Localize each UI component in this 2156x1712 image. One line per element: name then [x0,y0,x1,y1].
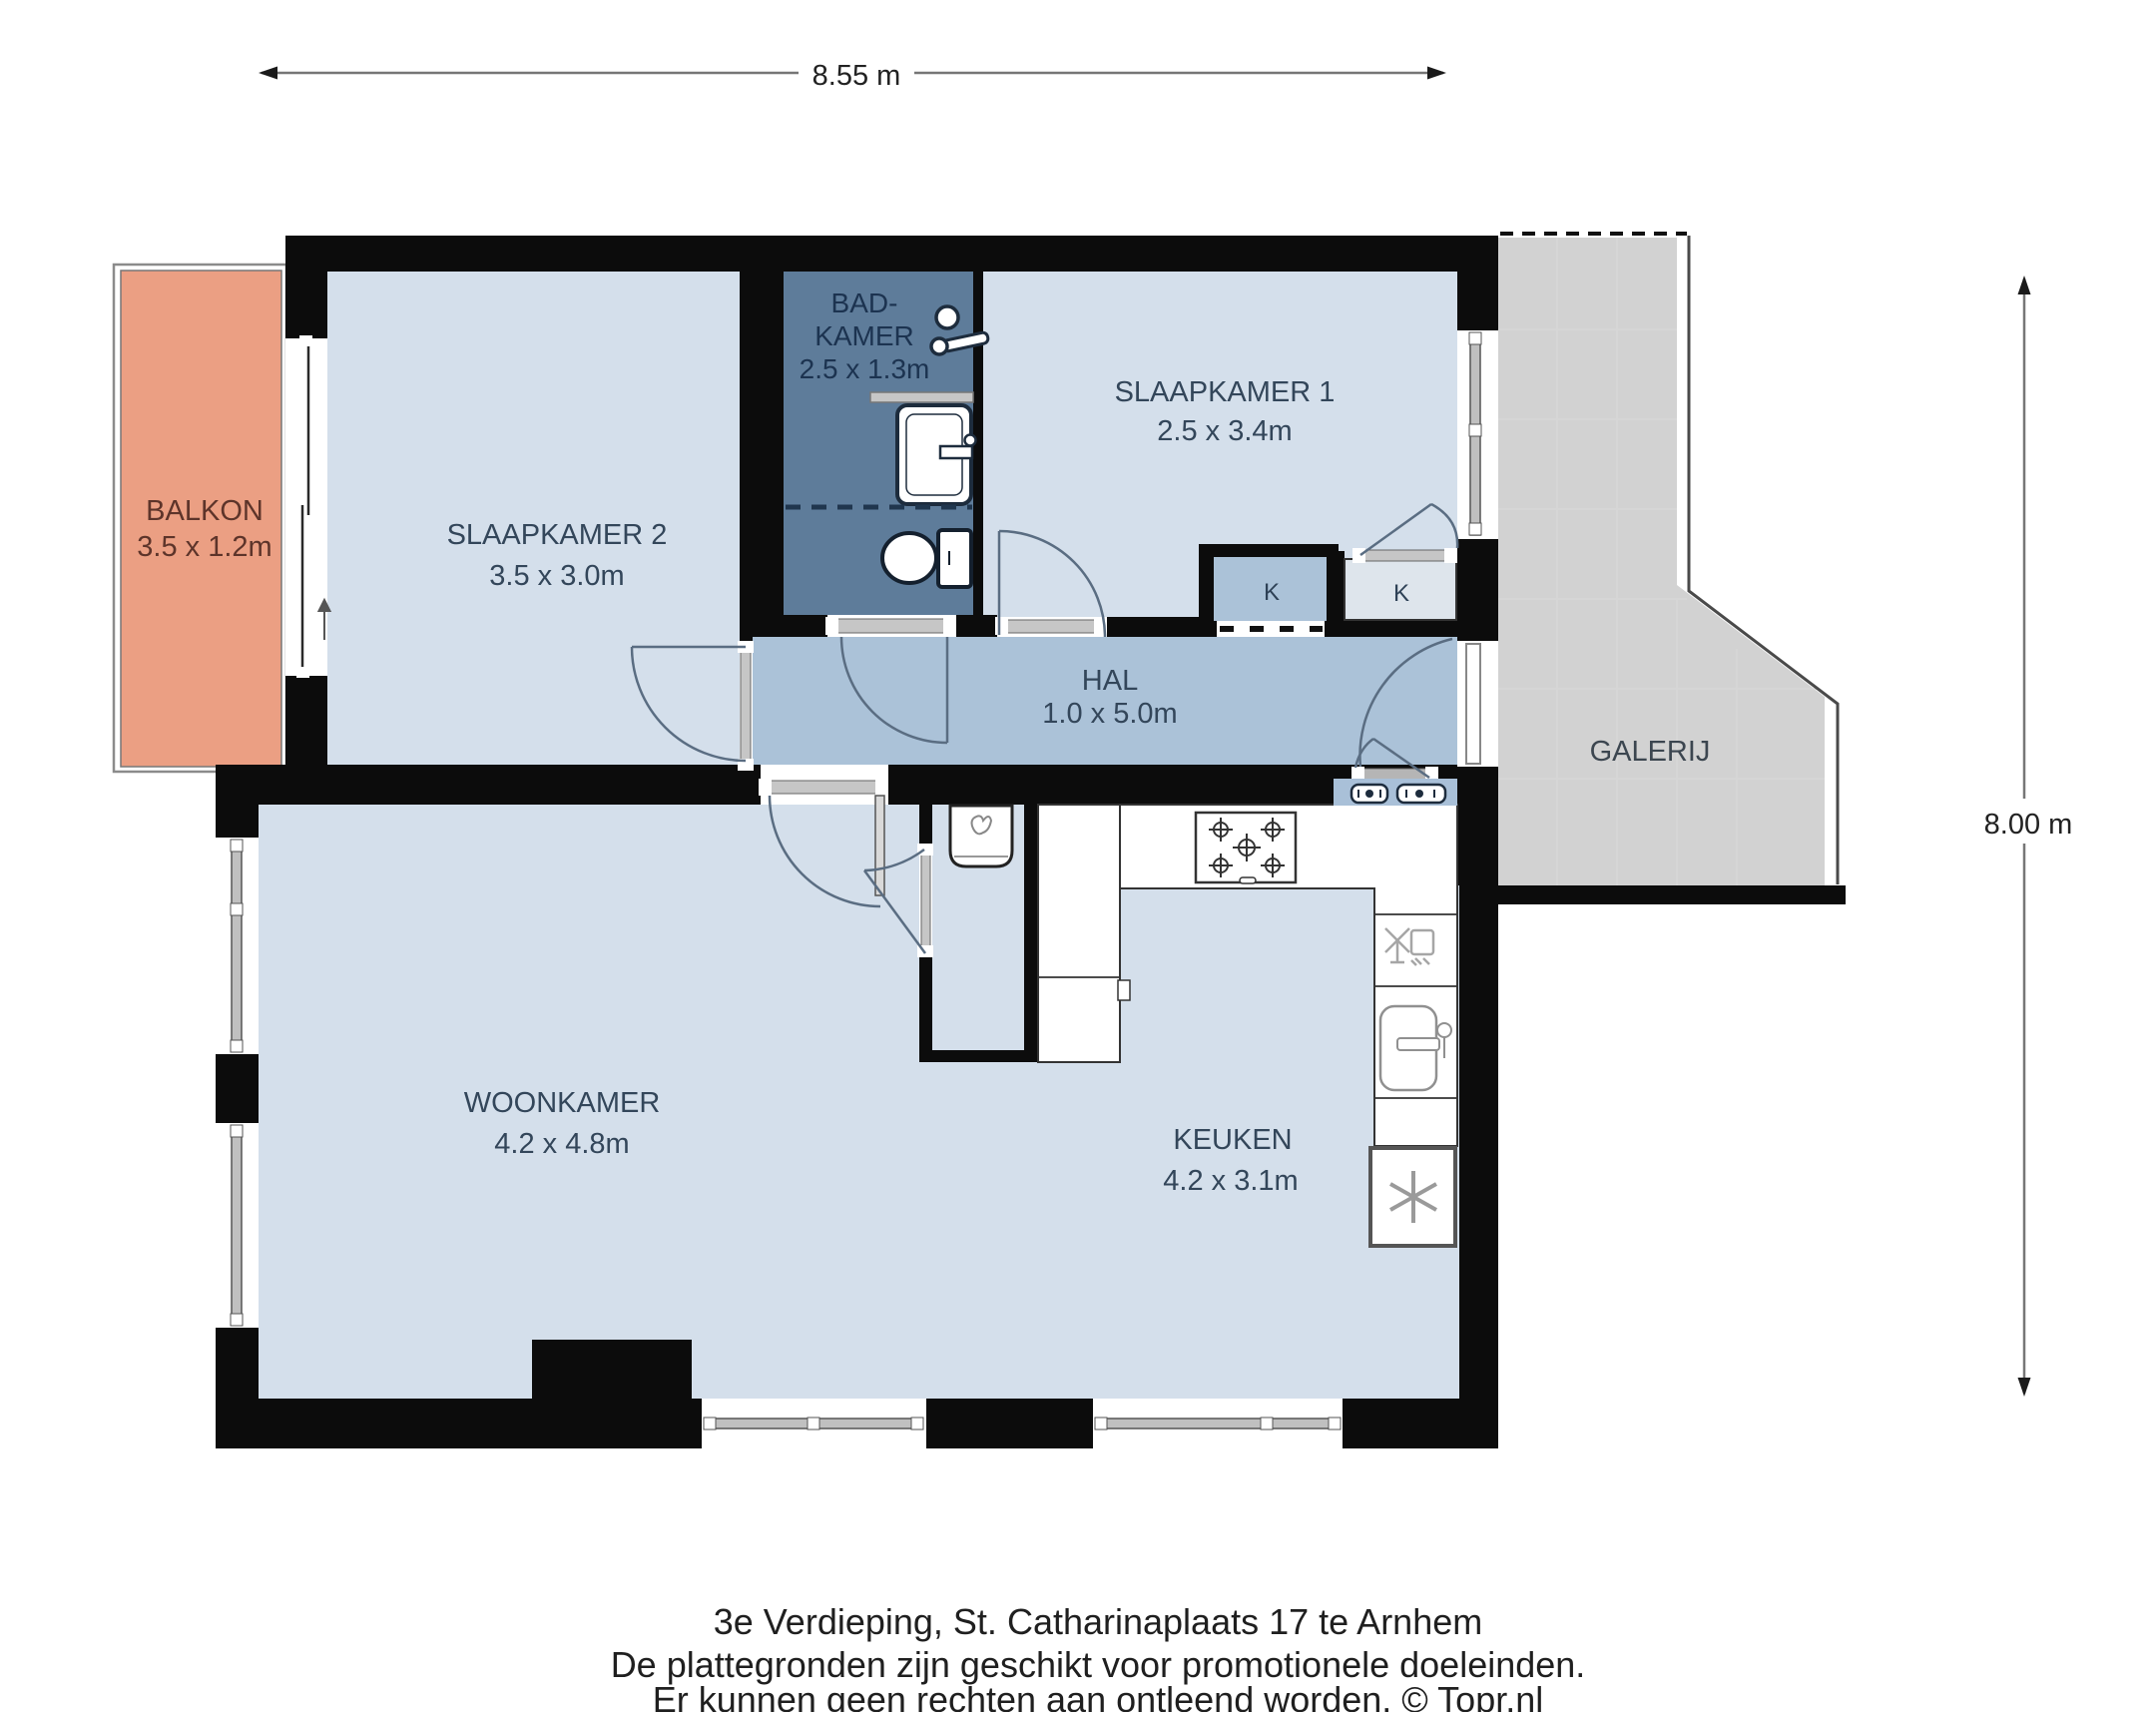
svg-text:4.2 x 4.8m: 4.2 x 4.8m [494,1128,629,1160]
svg-text:4.2 x 3.1m: 4.2 x 3.1m [1163,1165,1298,1197]
svg-text:KEUKEN: KEUKEN [1173,1124,1292,1156]
svg-text:HAL: HAL [1082,665,1138,697]
svg-text:GALERIJ: GALERIJ [1590,736,1711,768]
svg-text:K: K [1264,579,1280,606]
svg-text:1.0 x 5.0m: 1.0 x 5.0m [1042,698,1177,730]
svg-text:BAD-: BAD- [831,287,898,318]
svg-text:3.5 x 1.2m: 3.5 x 1.2m [137,531,271,563]
svg-text:Er kunnen geen rechten aan ont: Er kunnen geen rechten aan ontleend word… [653,1679,1544,1712]
svg-text:3e Verdieping, St. Catharinapl: 3e Verdieping, St. Catharinaplaats 17 te… [714,1601,1483,1642]
svg-text:SLAAPKAMER 1: SLAAPKAMER 1 [1115,376,1336,408]
svg-text:2.5 x 1.3m: 2.5 x 1.3m [800,353,930,384]
svg-text:BALKON: BALKON [146,495,264,527]
svg-text:K: K [1393,580,1409,607]
svg-text:WOONKAMER: WOONKAMER [464,1087,661,1119]
svg-text:8.55 m: 8.55 m [812,60,901,92]
svg-text:2.5 x 3.4m: 2.5 x 3.4m [1157,415,1292,447]
svg-text:SLAAPKAMER 2: SLAAPKAMER 2 [447,519,668,551]
svg-text:KAMER: KAMER [814,320,914,351]
svg-text:8.00 m: 8.00 m [1984,809,2073,841]
svg-text:3.5 x 3.0m: 3.5 x 3.0m [489,560,624,592]
